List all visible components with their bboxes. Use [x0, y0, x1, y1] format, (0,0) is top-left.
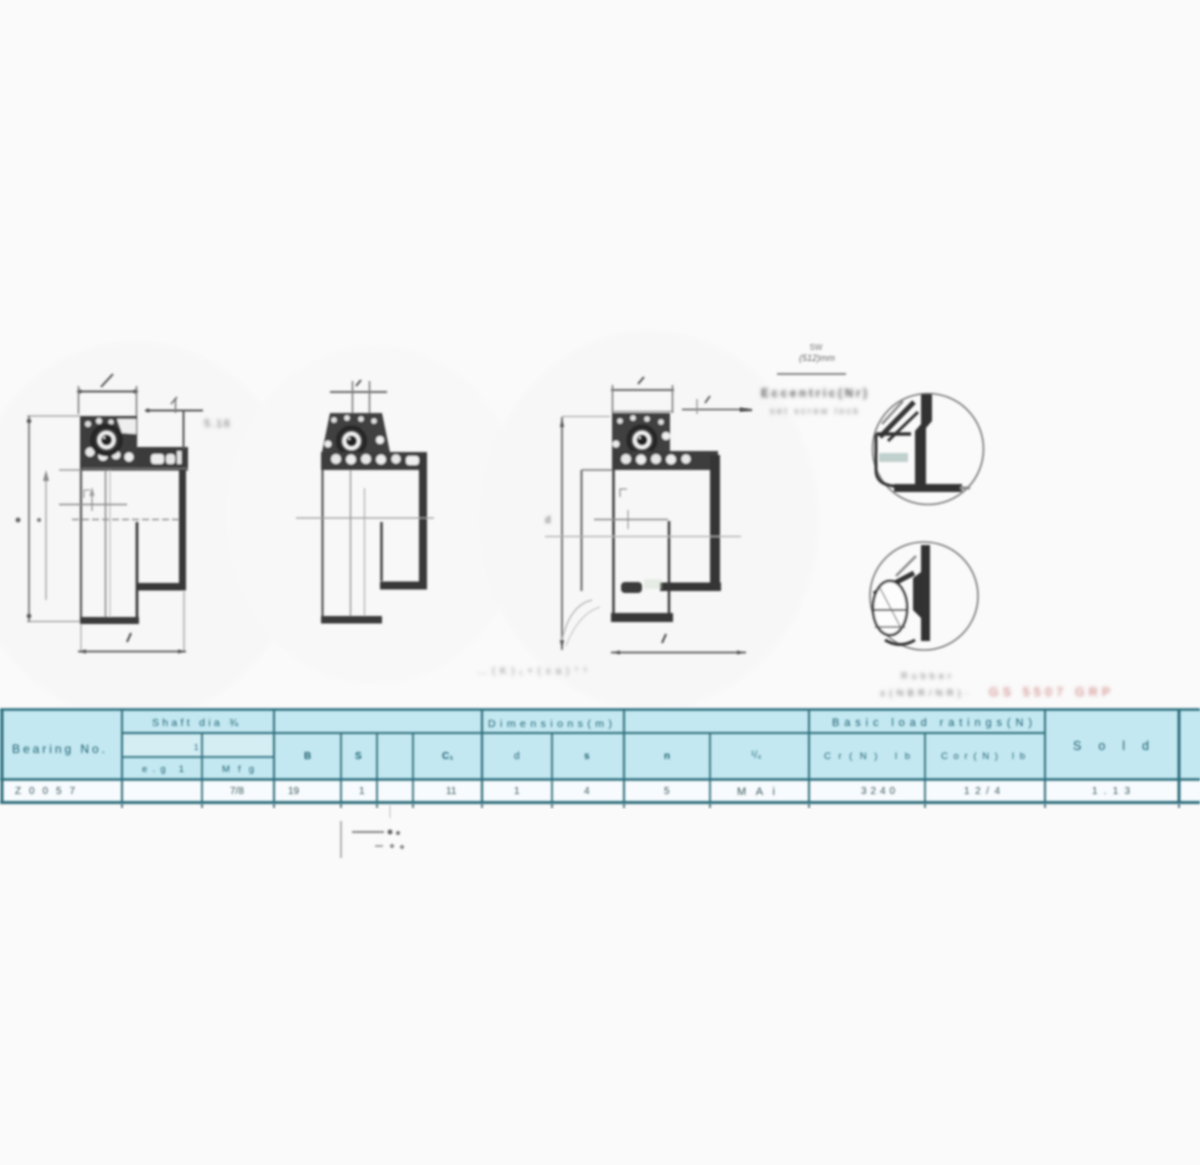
- svg-text:19: 19: [288, 786, 300, 797]
- svg-text:Cor(N) lb: Cor(N) lb: [941, 751, 1025, 762]
- svg-text:C₁: C₁: [442, 751, 453, 762]
- svg-text:d: d: [545, 515, 551, 526]
- svg-text:s: s: [584, 751, 590, 762]
- svg-text:Shaft dia ¾: Shaft dia ¾: [152, 717, 238, 729]
- svg-text:1: 1: [514, 786, 520, 797]
- svg-text:11: 11: [446, 786, 457, 797]
- svg-text:7/8: 7/8: [230, 786, 244, 797]
- svg-text:Mfg: Mfg: [222, 764, 254, 775]
- svg-text:(512)mm: (512)mm: [799, 353, 836, 363]
- svg-text:GS 5507 GRP: GS 5507 GRP: [989, 685, 1111, 699]
- svg-text:n: n: [664, 751, 670, 762]
- svg-text:1: 1: [194, 743, 199, 752]
- svg-text:1: 1: [359, 786, 365, 797]
- svg-text:Bearing No.: Bearing No.: [12, 742, 105, 756]
- svg-text:S: S: [355, 751, 362, 762]
- svg-text:5.16: 5.16: [204, 418, 231, 430]
- svg-text:4: 4: [584, 786, 590, 797]
- svg-text:SW: SW: [810, 343, 823, 352]
- svg-text:5: 5: [664, 786, 670, 797]
- svg-text:d: d: [514, 751, 520, 762]
- svg-text:¹/₄: ¹/₄: [751, 750, 761, 761]
- svg-text:B: B: [304, 751, 311, 762]
